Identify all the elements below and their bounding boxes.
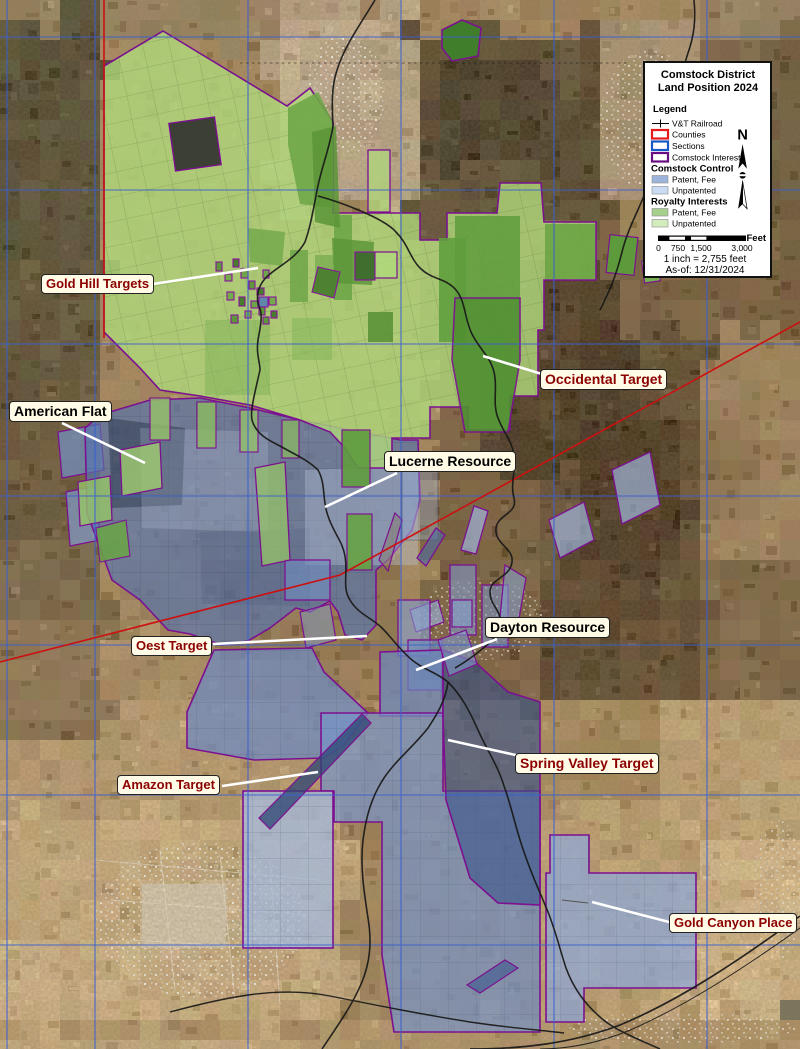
svg-text:V&T Railroad: V&T Railroad (672, 119, 723, 129)
svg-text:Comstock District: Comstock District (661, 69, 755, 81)
svg-text:As-of: 12/31/2024: As-of: 12/31/2024 (666, 265, 745, 276)
svg-text:0: 0 (656, 243, 661, 253)
svg-text:Comstock Interests: Comstock Interests (672, 153, 745, 163)
svg-text:Legend: Legend (653, 104, 687, 115)
svg-text:1,500: 1,500 (690, 243, 712, 253)
svg-text:Unpatented: Unpatented (672, 186, 716, 196)
svg-text:3,000: 3,000 (731, 243, 753, 253)
svg-text:Counties: Counties (672, 130, 706, 140)
svg-text:Comstock Control: Comstock Control (651, 164, 733, 175)
svg-text:750: 750 (671, 243, 685, 253)
svg-text:Royalty Interests: Royalty Interests (651, 197, 728, 208)
svg-text:Patent, Fee: Patent, Fee (672, 175, 716, 185)
svg-text:Sections: Sections (672, 141, 705, 151)
svg-text:1 inch = 2,755 feet: 1 inch = 2,755 feet (664, 254, 747, 265)
svg-text:Patent, Fee: Patent, Fee (672, 208, 716, 218)
svg-text:Unpatented: Unpatented (672, 219, 716, 229)
svg-text:N: N (737, 128, 747, 144)
svg-text:Land Position 2024: Land Position 2024 (658, 82, 759, 94)
